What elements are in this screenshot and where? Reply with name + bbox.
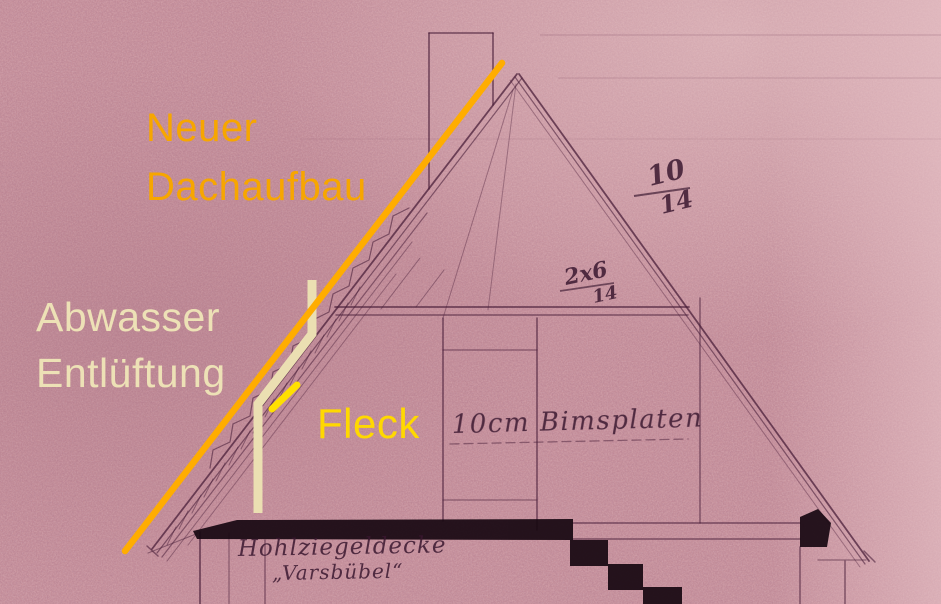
- vent-annotation-line2: Entlüftung: [36, 350, 226, 397]
- ceiling-brand-label: „Varsbübel“: [272, 559, 404, 585]
- new-roof-annotation-line2: Dachaufbau: [146, 165, 367, 210]
- vent-annotation-line1: Abwasser: [36, 294, 220, 341]
- hohlziegeldecke-label: Hohlziegeldecke: [237, 532, 447, 562]
- fleck-annotation: Fleck: [317, 400, 420, 448]
- scanned-roof-section-drawing: 10cm Bimsplaten Hohlziegeldecke „Varsbüb…: [0, 0, 941, 604]
- new-roof-annotation-line1: Neuer: [146, 106, 257, 151]
